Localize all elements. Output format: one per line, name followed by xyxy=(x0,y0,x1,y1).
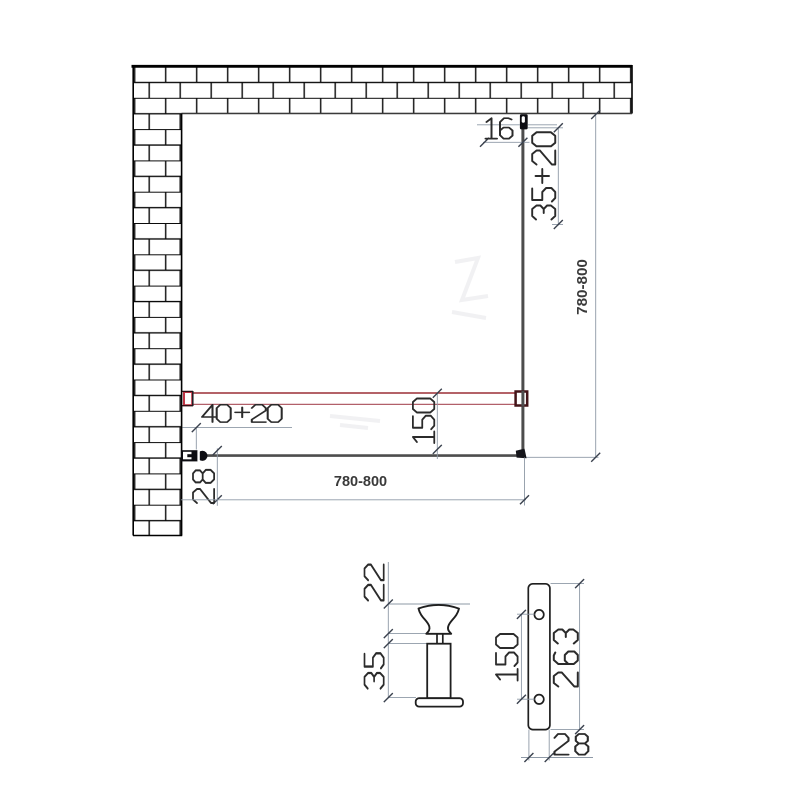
svg-text:780-800: 780-800 xyxy=(574,259,591,315)
svg-text:780-800: 780-800 xyxy=(334,474,387,490)
